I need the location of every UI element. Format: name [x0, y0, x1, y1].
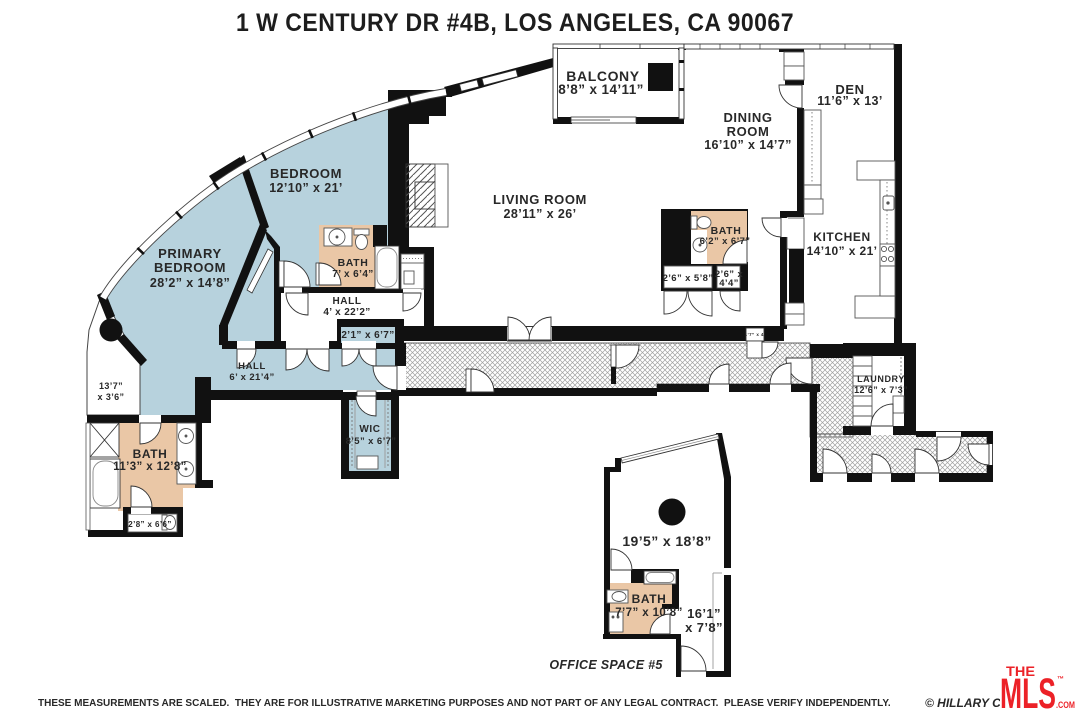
svg-text:x 7’8”: x 7’8” [685, 620, 723, 635]
svg-text:™: ™ [1057, 676, 1064, 683]
svg-text:7’ x 6’4”: 7’ x 6’4” [332, 269, 373, 280]
svg-text:2’1” x 6’7”: 2’1” x 6’7” [341, 330, 394, 341]
svg-text:8’5” x 6’7”: 8’5” x 6’7” [346, 436, 397, 447]
svg-text:THESE MEASUREMENTS ARE SCALED.: THESE MEASUREMENTS ARE SCALED. THEY ARE … [38, 698, 891, 709]
svg-text:19’5” x 18’8”: 19’5” x 18’8” [622, 533, 711, 549]
svg-text:6’ x 21’4”: 6’ x 21’4” [229, 372, 274, 383]
svg-text:1 W CENTURY DR #4B, LOS ANGELE: 1 W CENTURY DR #4B, LOS ANGELES, CA 9006… [236, 9, 794, 37]
svg-text:28’2” x 14’8”: 28’2” x 14’8” [150, 276, 230, 290]
svg-text:4’ x 22’2”: 4’ x 22’2” [323, 307, 370, 318]
svg-text:4’4”: 4’4” [719, 278, 739, 289]
svg-text:12’10” x 21’: 12’10” x 21’ [269, 181, 343, 195]
svg-text:HALL: HALL [238, 361, 266, 372]
svg-text:1’7” x 4’: 1’7” x 4’ [745, 332, 766, 337]
svg-text:BATH: BATH [632, 592, 667, 606]
svg-text:.COM: .COM [1056, 700, 1075, 710]
svg-text:13’7”: 13’7” [99, 381, 123, 391]
svg-text:12’6” x 7’3”: 12’6” x 7’3” [854, 385, 908, 395]
svg-text:ROOM: ROOM [727, 124, 770, 139]
svg-text:11’3” x 12’8”: 11’3” x 12’8” [113, 461, 187, 473]
svg-text:MLS: MLS [1000, 670, 1056, 718]
svg-text:KITCHEN: KITCHEN [813, 230, 871, 244]
svg-text:2’6” x 5’8”: 2’6” x 5’8” [663, 273, 714, 284]
svg-text:7’7” x 10’8”: 7’7” x 10’8” [615, 607, 682, 619]
svg-text:PRIMARY: PRIMARY [158, 246, 222, 261]
svg-text:2’8” x 6’6”: 2’8” x 6’6” [128, 520, 172, 529]
svg-text:28’11” x 26’: 28’11” x 26’ [504, 207, 577, 221]
svg-text:x 3’6”: x 3’6” [98, 392, 125, 402]
svg-text:11’6” x 13’: 11’6” x 13’ [817, 94, 883, 108]
svg-text:16’10” x 14’7”: 16’10” x 14’7” [704, 138, 792, 152]
svg-text:OFFICE SPACE #5: OFFICE SPACE #5 [549, 658, 663, 672]
svg-text:WIC: WIC [359, 424, 380, 435]
svg-text:16’1”: 16’1” [687, 606, 721, 621]
svg-text:BEDROOM: BEDROOM [270, 166, 342, 181]
svg-text:BATH: BATH [338, 257, 369, 269]
svg-text:DINING: DINING [723, 110, 772, 125]
svg-text:BATH: BATH [133, 447, 168, 461]
svg-text:6’2” x 6’7”: 6’2” x 6’7” [700, 236, 751, 247]
svg-text:HALL: HALL [332, 296, 361, 307]
svg-text:14’10” x 21’: 14’10” x 21’ [807, 244, 878, 258]
svg-text:LAUNDRY: LAUNDRY [857, 374, 905, 384]
svg-text:LIVING ROOM: LIVING ROOM [493, 192, 587, 207]
svg-text:BEDROOM: BEDROOM [154, 260, 226, 275]
svg-text:8’8” x 14’11”: 8’8” x 14’11” [558, 82, 644, 97]
